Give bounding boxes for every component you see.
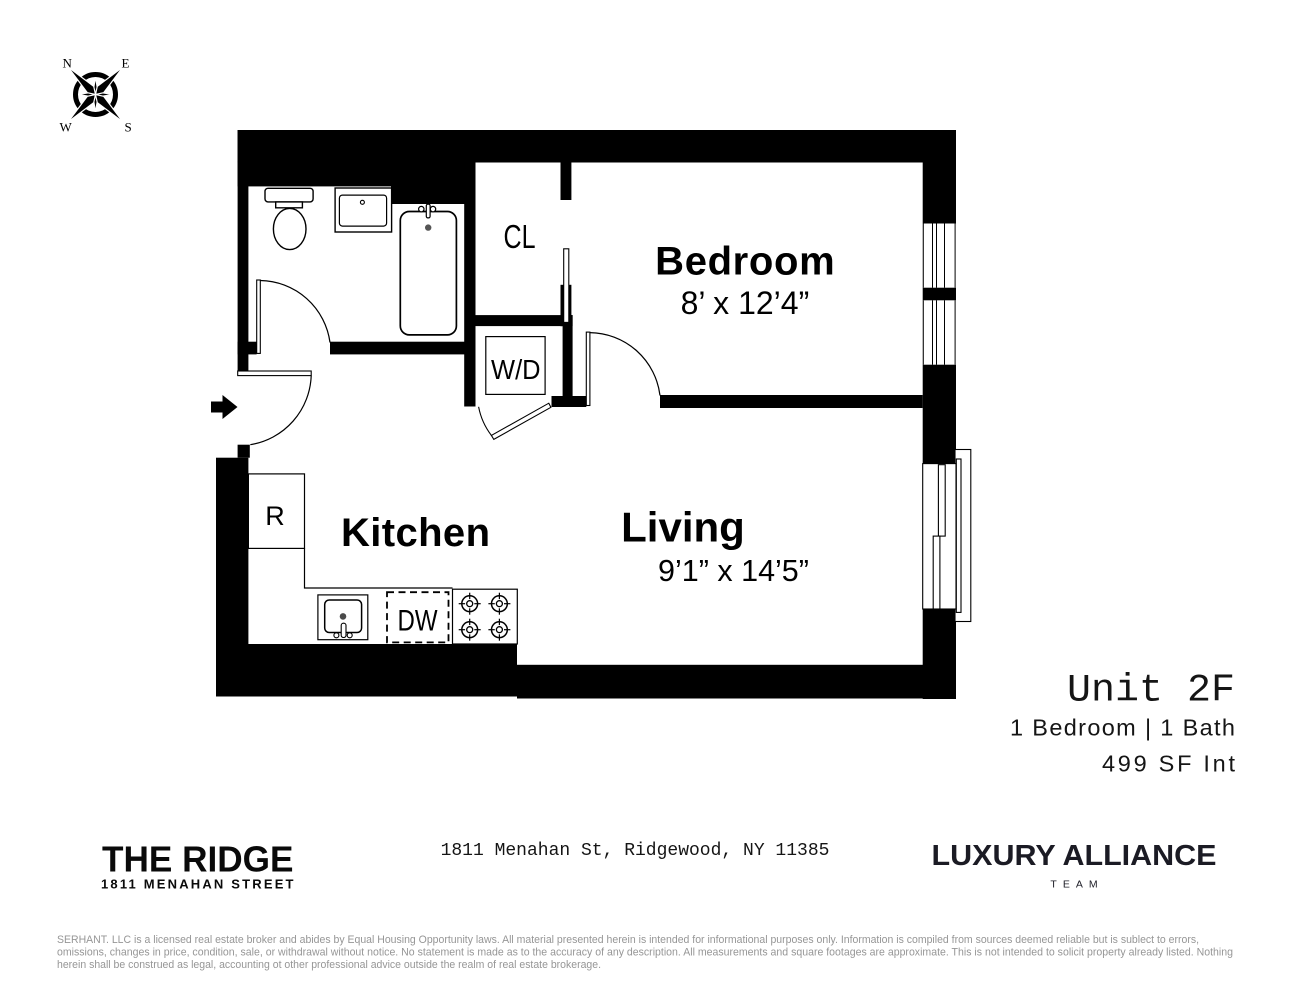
svg-text:omissions, changes in price, c: omissions, changes in price, condition, … (57, 947, 1233, 959)
svg-text:Bedroom: Bedroom (655, 240, 835, 284)
svg-text:1811 Menahan St, Ridgewood, NY: 1811 Menahan St, Ridgewood, NY 11385 (441, 841, 830, 861)
svg-text:8’ x 12’4”: 8’ x 12’4” (681, 285, 810, 321)
svg-text:1811 MENAHAN STREET: 1811 MENAHAN STREET (101, 877, 294, 892)
svg-text:W: W (60, 120, 73, 135)
svg-text:499 SF Int: 499 SF Int (1102, 751, 1235, 777)
svg-text:TEAM: TEAM (1050, 879, 1103, 891)
svg-text:SERHANT. LLC is a licensed rea: SERHANT. LLC is a licensed real estate b… (57, 934, 1199, 946)
svg-text:herein shall be construed as l: herein shall be construed as legal, acco… (57, 959, 601, 971)
svg-text:Unit 2F: Unit 2F (1067, 669, 1235, 713)
svg-text:9’1” x 14’5”: 9’1” x 14’5” (658, 554, 809, 588)
svg-text:Kitchen: Kitchen (341, 511, 490, 555)
svg-text:DW: DW (398, 604, 438, 637)
svg-text:LUXURY ALLIANCE: LUXURY ALLIANCE (932, 840, 1217, 872)
svg-text:W/D: W/D (491, 354, 541, 385)
svg-text:CL: CL (504, 219, 536, 256)
svg-text:S: S (125, 120, 132, 135)
svg-text:R: R (265, 501, 285, 531)
svg-text:1 Bedroom | 1 Bath: 1 Bedroom | 1 Bath (1010, 715, 1235, 741)
svg-text:THE RIDGE: THE RIDGE (102, 839, 294, 880)
svg-text:E: E (122, 56, 130, 71)
svg-text:N: N (63, 56, 73, 71)
svg-text:Living: Living (621, 504, 745, 551)
